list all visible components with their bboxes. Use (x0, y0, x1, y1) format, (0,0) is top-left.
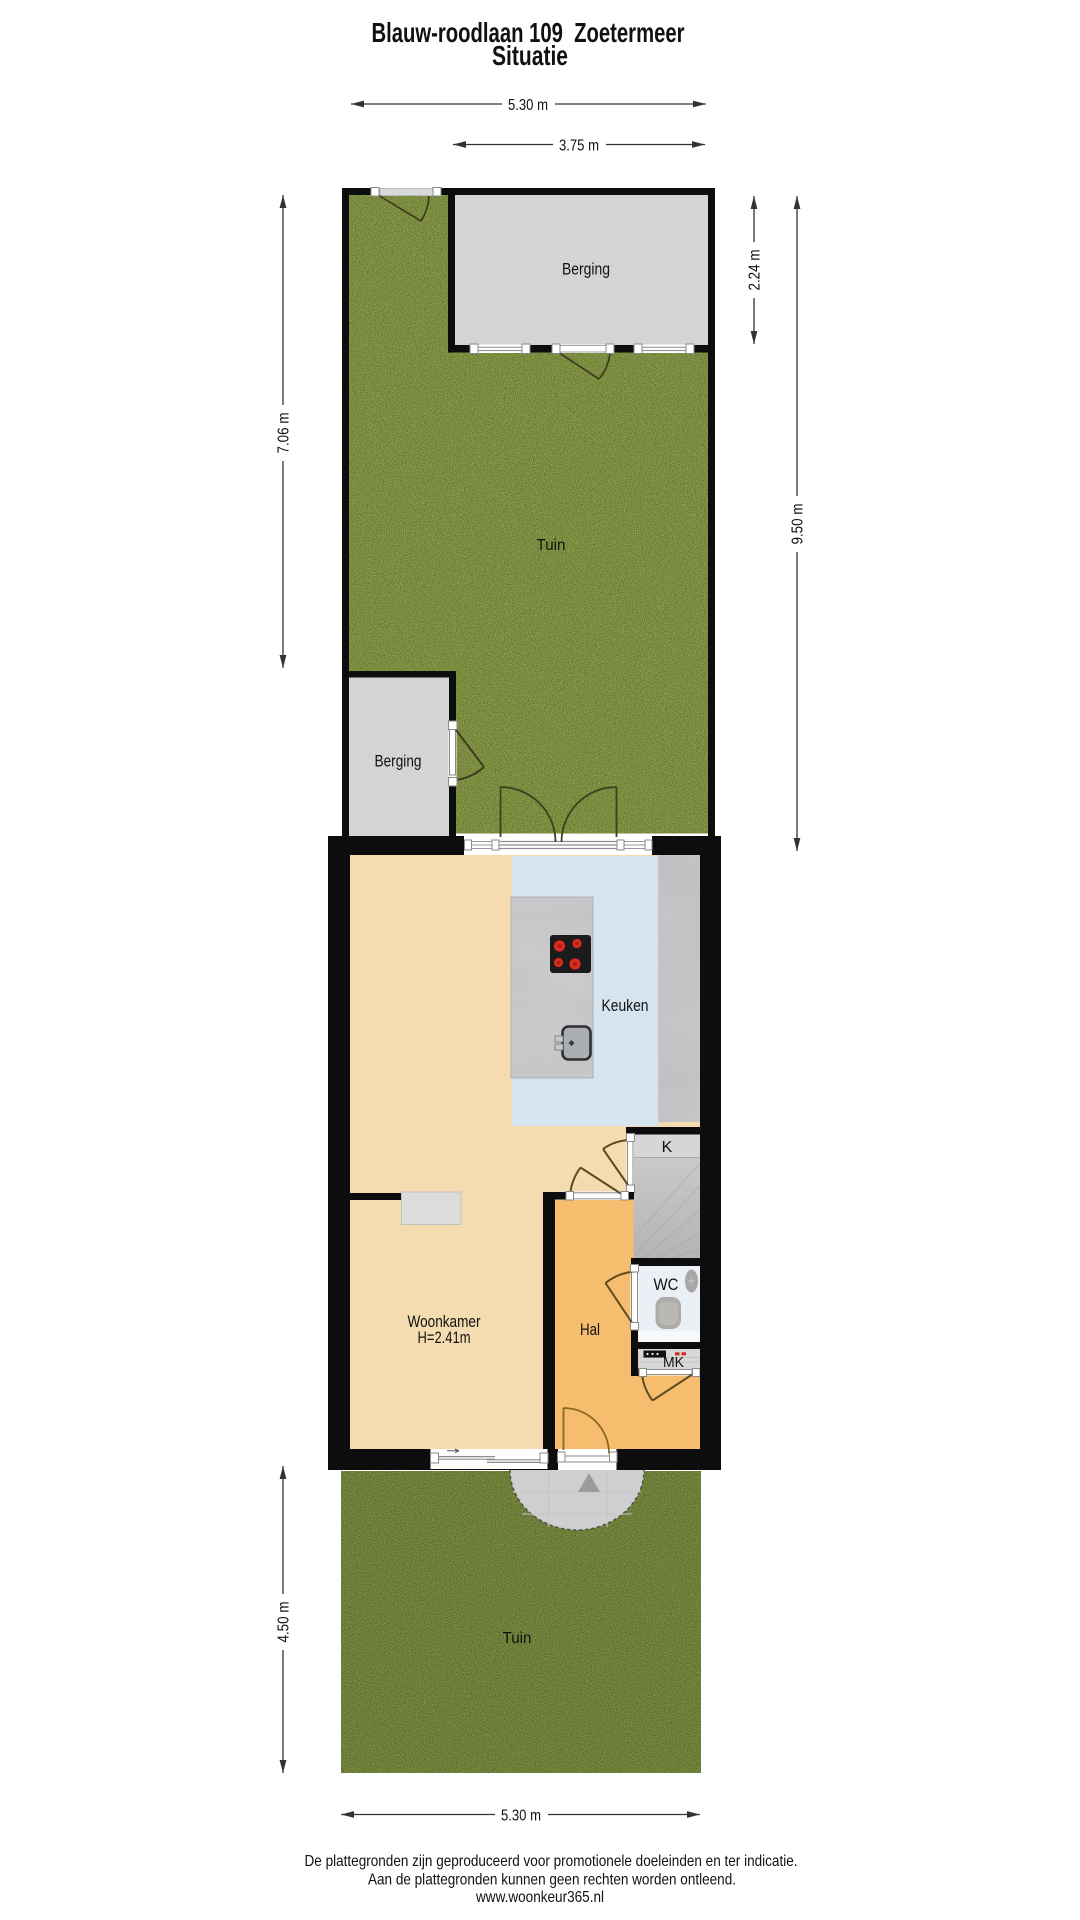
svg-text:K: K (662, 1139, 673, 1156)
svg-text:9.50 m: 9.50 m (790, 504, 807, 545)
svg-text:Keuken: Keuken (602, 996, 649, 1015)
svg-text:Tuin: Tuin (537, 537, 566, 554)
svg-text:Berging: Berging (562, 260, 610, 279)
svg-text:Hal: Hal (580, 1320, 600, 1339)
svg-text:www.woonkeur365.nl: www.woonkeur365.nl (475, 1889, 604, 1906)
svg-text:H=2.41m: H=2.41m (418, 1328, 471, 1347)
svg-text:MK: MK (663, 1355, 684, 1371)
svg-text:Aan de plattegronden kunnen ge: Aan de plattegronden kunnen geen rechten… (368, 1872, 736, 1889)
svg-text:Tuin: Tuin (503, 1630, 532, 1647)
svg-text:Berging: Berging (375, 752, 422, 771)
svg-text:5.30 m: 5.30 m (508, 97, 548, 114)
svg-text:5.30 m: 5.30 m (501, 1808, 541, 1825)
svg-text:WC: WC (654, 1275, 679, 1294)
svg-text:2.24 m: 2.24 m (747, 250, 764, 291)
svg-text:3.75 m: 3.75 m (559, 138, 599, 155)
svg-text:De plattegronden zijn geproduc: De plattegronden zijn geproduceerd voor … (305, 1853, 798, 1870)
svg-text:4.50 m: 4.50 m (276, 1602, 293, 1643)
svg-text:7.06 m: 7.06 m (276, 413, 293, 454)
svg-text:Situatie: Situatie (492, 40, 568, 71)
